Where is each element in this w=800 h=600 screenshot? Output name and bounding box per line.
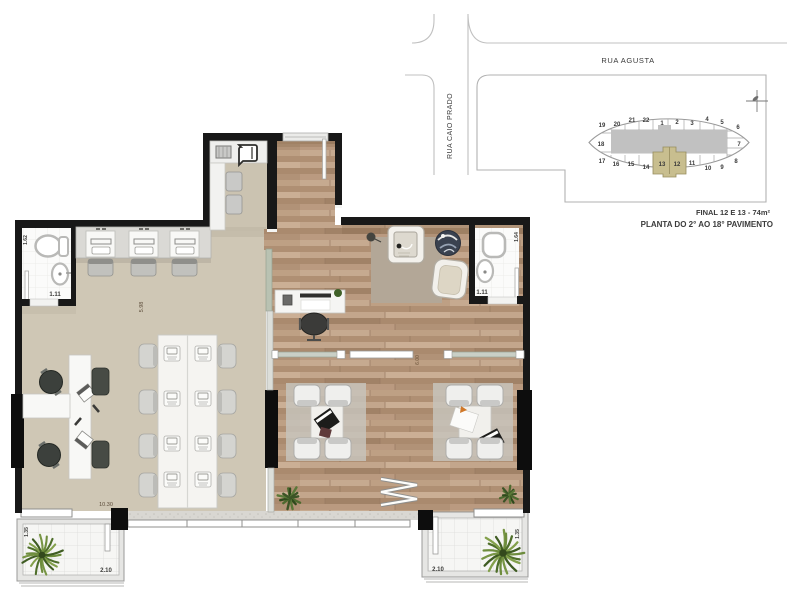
- svg-text:2.10: 2.10: [432, 567, 444, 573]
- svg-text:10: 10: [705, 166, 712, 172]
- svg-text:12: 12: [674, 162, 681, 168]
- svg-text:15: 15: [628, 162, 635, 168]
- svg-text:1.64: 1.64: [514, 232, 520, 242]
- svg-text:18: 18: [598, 142, 605, 148]
- svg-text:1.11: 1.11: [49, 292, 61, 298]
- svg-text:RUA AGUSTA: RUA AGUSTA: [601, 56, 654, 65]
- svg-text:5.98: 5.98: [139, 302, 145, 313]
- svg-text:PLANTA DO 2° AO 18° PAVIMENTO: PLANTA DO 2° AO 18° PAVIMENTO: [641, 220, 773, 229]
- svg-text:1.35: 1.35: [515, 529, 521, 539]
- svg-text:20: 20: [614, 122, 621, 128]
- svg-text:22: 22: [643, 118, 650, 124]
- svg-text:10.30: 10.30: [99, 502, 113, 508]
- svg-text:21: 21: [629, 118, 636, 124]
- svg-text:RUA CAIO PRADO: RUA CAIO PRADO: [447, 93, 454, 159]
- svg-text:6.00: 6.00: [415, 355, 421, 365]
- svg-text:17: 17: [599, 159, 606, 165]
- svg-text:1.62: 1.62: [23, 235, 29, 245]
- svg-text:19: 19: [599, 123, 606, 129]
- svg-text:2.10: 2.10: [100, 568, 112, 574]
- svg-text:16: 16: [613, 162, 620, 168]
- svg-text:1.35: 1.35: [24, 527, 30, 537]
- svg-text:11: 11: [689, 161, 696, 167]
- svg-text:1.11: 1.11: [476, 290, 488, 296]
- svg-text:14: 14: [643, 165, 650, 171]
- svg-text:13: 13: [659, 162, 666, 168]
- svg-text:FINAL 12 E 13 - 74m²: FINAL 12 E 13 - 74m²: [696, 208, 771, 217]
